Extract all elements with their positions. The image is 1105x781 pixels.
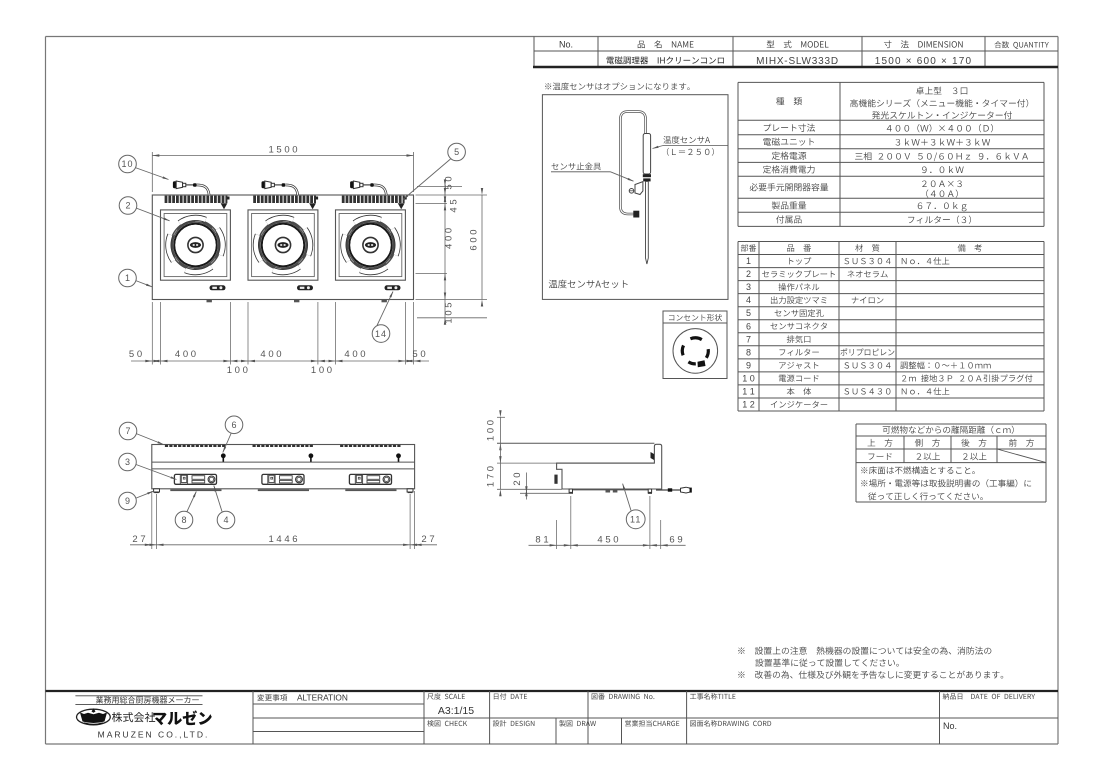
svg-text:11: 11 (630, 515, 641, 525)
svg-text:4: 4 (223, 515, 228, 525)
svg-text:2 7: 2 7 (421, 534, 434, 545)
svg-text:1 2: 1 2 (742, 399, 755, 409)
svg-text:8 1: 8 1 (535, 534, 548, 545)
svg-text:4: 4 (746, 295, 751, 305)
svg-text:ALTERATION: ALTERATION (297, 693, 348, 703)
svg-text:5: 5 (746, 308, 751, 318)
svg-text:2 7: 2 7 (132, 534, 145, 545)
svg-text:4 0 0: 4 0 0 (344, 349, 365, 360)
svg-text:2: 2 (125, 201, 130, 211)
svg-text:1 0 0: 1 0 0 (311, 365, 332, 376)
svg-text:9: 9 (746, 360, 751, 370)
svg-text:1: 1 (746, 256, 751, 266)
svg-text:1 5 0 0: 1 5 0 0 (268, 145, 297, 156)
svg-text:MARUZEN CO.,LTD.: MARUZEN CO.,LTD. (98, 730, 210, 740)
svg-text:3: 3 (125, 457, 130, 467)
svg-text:7: 7 (125, 426, 130, 436)
svg-text:1 0 0: 1 0 0 (227, 365, 248, 376)
svg-text:5 0: 5 0 (412, 349, 425, 360)
svg-text:1 4 4 6: 1 4 4 6 (268, 534, 297, 545)
svg-text:A3:1/15: A3:1/15 (438, 705, 474, 717)
svg-text:4 5 0: 4 5 0 (597, 534, 618, 545)
svg-text:1500 × 600 × 170: 1500 × 600 × 170 (875, 56, 973, 67)
svg-text:4 0 0: 4 0 0 (260, 349, 281, 360)
svg-text:3: 3 (746, 282, 751, 292)
svg-text:1: 1 (125, 273, 130, 283)
svg-text:2: 2 (746, 269, 751, 279)
svg-text:6: 6 (231, 420, 236, 430)
svg-text:4 5: 4 5 (449, 199, 460, 212)
svg-text:No.: No. (559, 40, 573, 50)
svg-text:5 0: 5 0 (444, 176, 455, 189)
svg-text:1 7 0: 1 7 0 (486, 466, 497, 487)
svg-text:10: 10 (121, 159, 133, 169)
svg-text:1 0 0: 1 0 0 (486, 420, 497, 441)
svg-text:5: 5 (454, 147, 459, 157)
svg-text:MIHX-SLW333D: MIHX-SLW333D (756, 56, 839, 67)
svg-text:4 0 0: 4 0 0 (175, 349, 196, 360)
svg-text:1 1: 1 1 (742, 386, 755, 396)
svg-text:7: 7 (746, 334, 751, 344)
svg-text:2 0: 2 0 (512, 472, 523, 485)
svg-text:4 0 0: 4 0 0 (444, 228, 455, 249)
svg-text:14: 14 (375, 329, 387, 339)
svg-text:1 0: 1 0 (742, 373, 755, 383)
svg-text:9: 9 (125, 496, 130, 506)
svg-text:6: 6 (746, 321, 751, 331)
svg-text:8: 8 (181, 515, 186, 525)
svg-text:8: 8 (746, 347, 751, 357)
svg-text:No.: No. (943, 721, 957, 731)
svg-text:6 0 0: 6 0 0 (469, 229, 480, 250)
svg-text:1 0 5: 1 0 5 (444, 302, 455, 323)
svg-text:5 0: 5 0 (129, 349, 142, 360)
svg-text:6 9: 6 9 (669, 534, 682, 545)
